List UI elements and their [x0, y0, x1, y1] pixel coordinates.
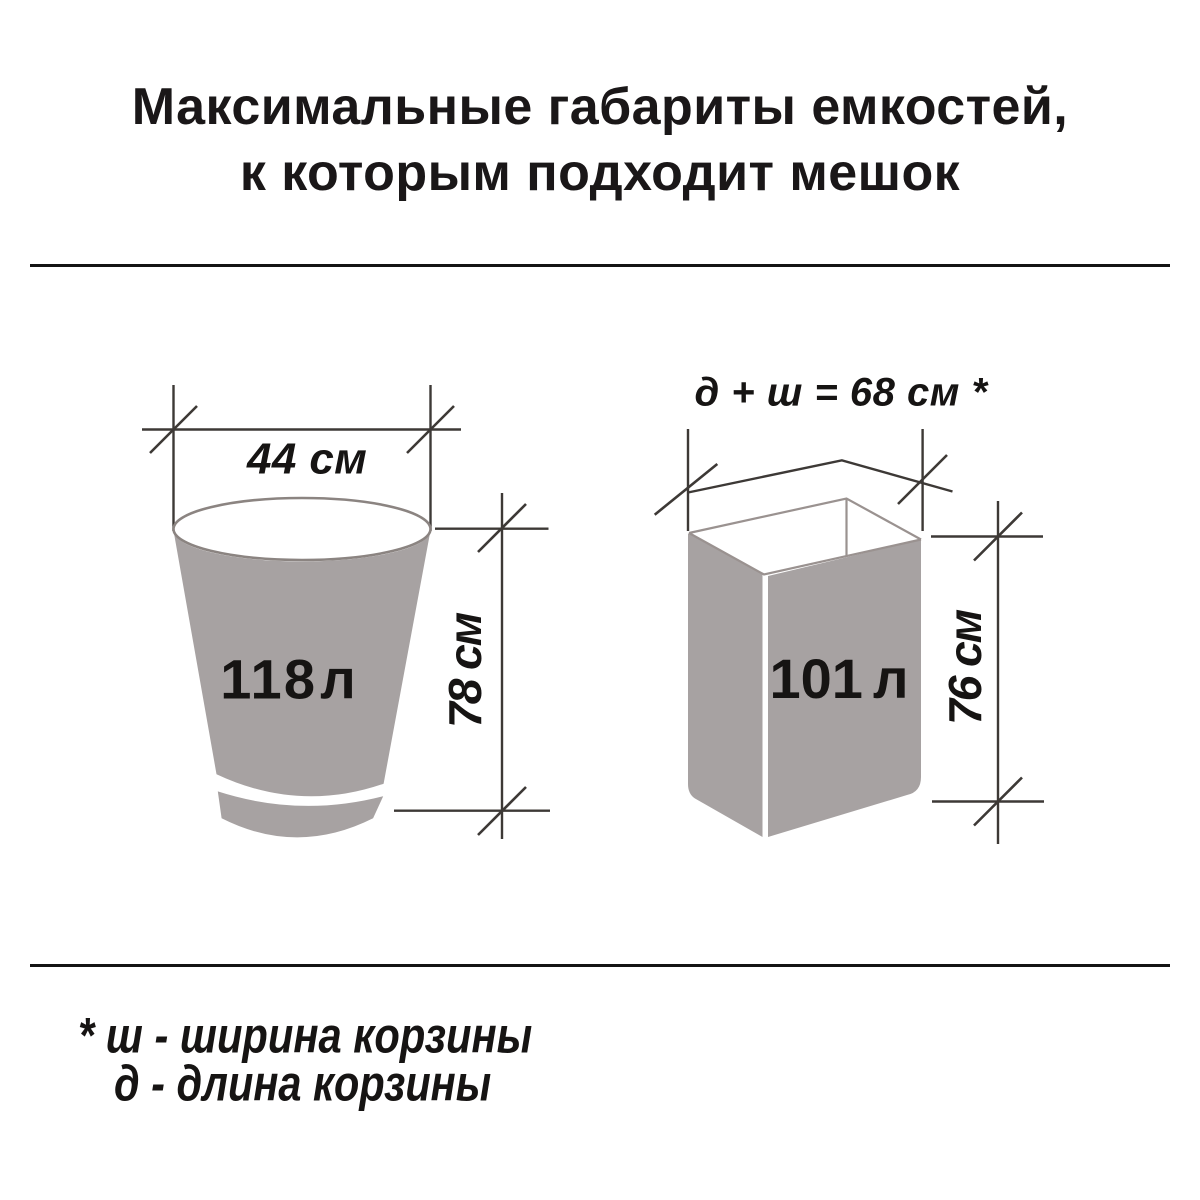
- svg-text:Максимальные габариты емкостей: Максимальные габариты емкостей,: [132, 78, 1068, 136]
- svg-text:д - длина корзины: д - длина корзины: [114, 1055, 491, 1112]
- svg-text:л: л: [873, 647, 909, 710]
- svg-text:л: л: [320, 648, 356, 711]
- svg-text:78 см: 78 см: [439, 612, 491, 728]
- svg-text:к которым подходит мешок: к которым подходит мешок: [240, 144, 961, 202]
- svg-text:76 см: 76 см: [939, 609, 991, 725]
- svg-text:44 см: 44 см: [246, 435, 367, 484]
- svg-text:118: 118: [220, 648, 317, 711]
- svg-text:101: 101: [770, 647, 863, 710]
- svg-text:д + ш = 68 см *: д + ш = 68 см *: [694, 371, 989, 415]
